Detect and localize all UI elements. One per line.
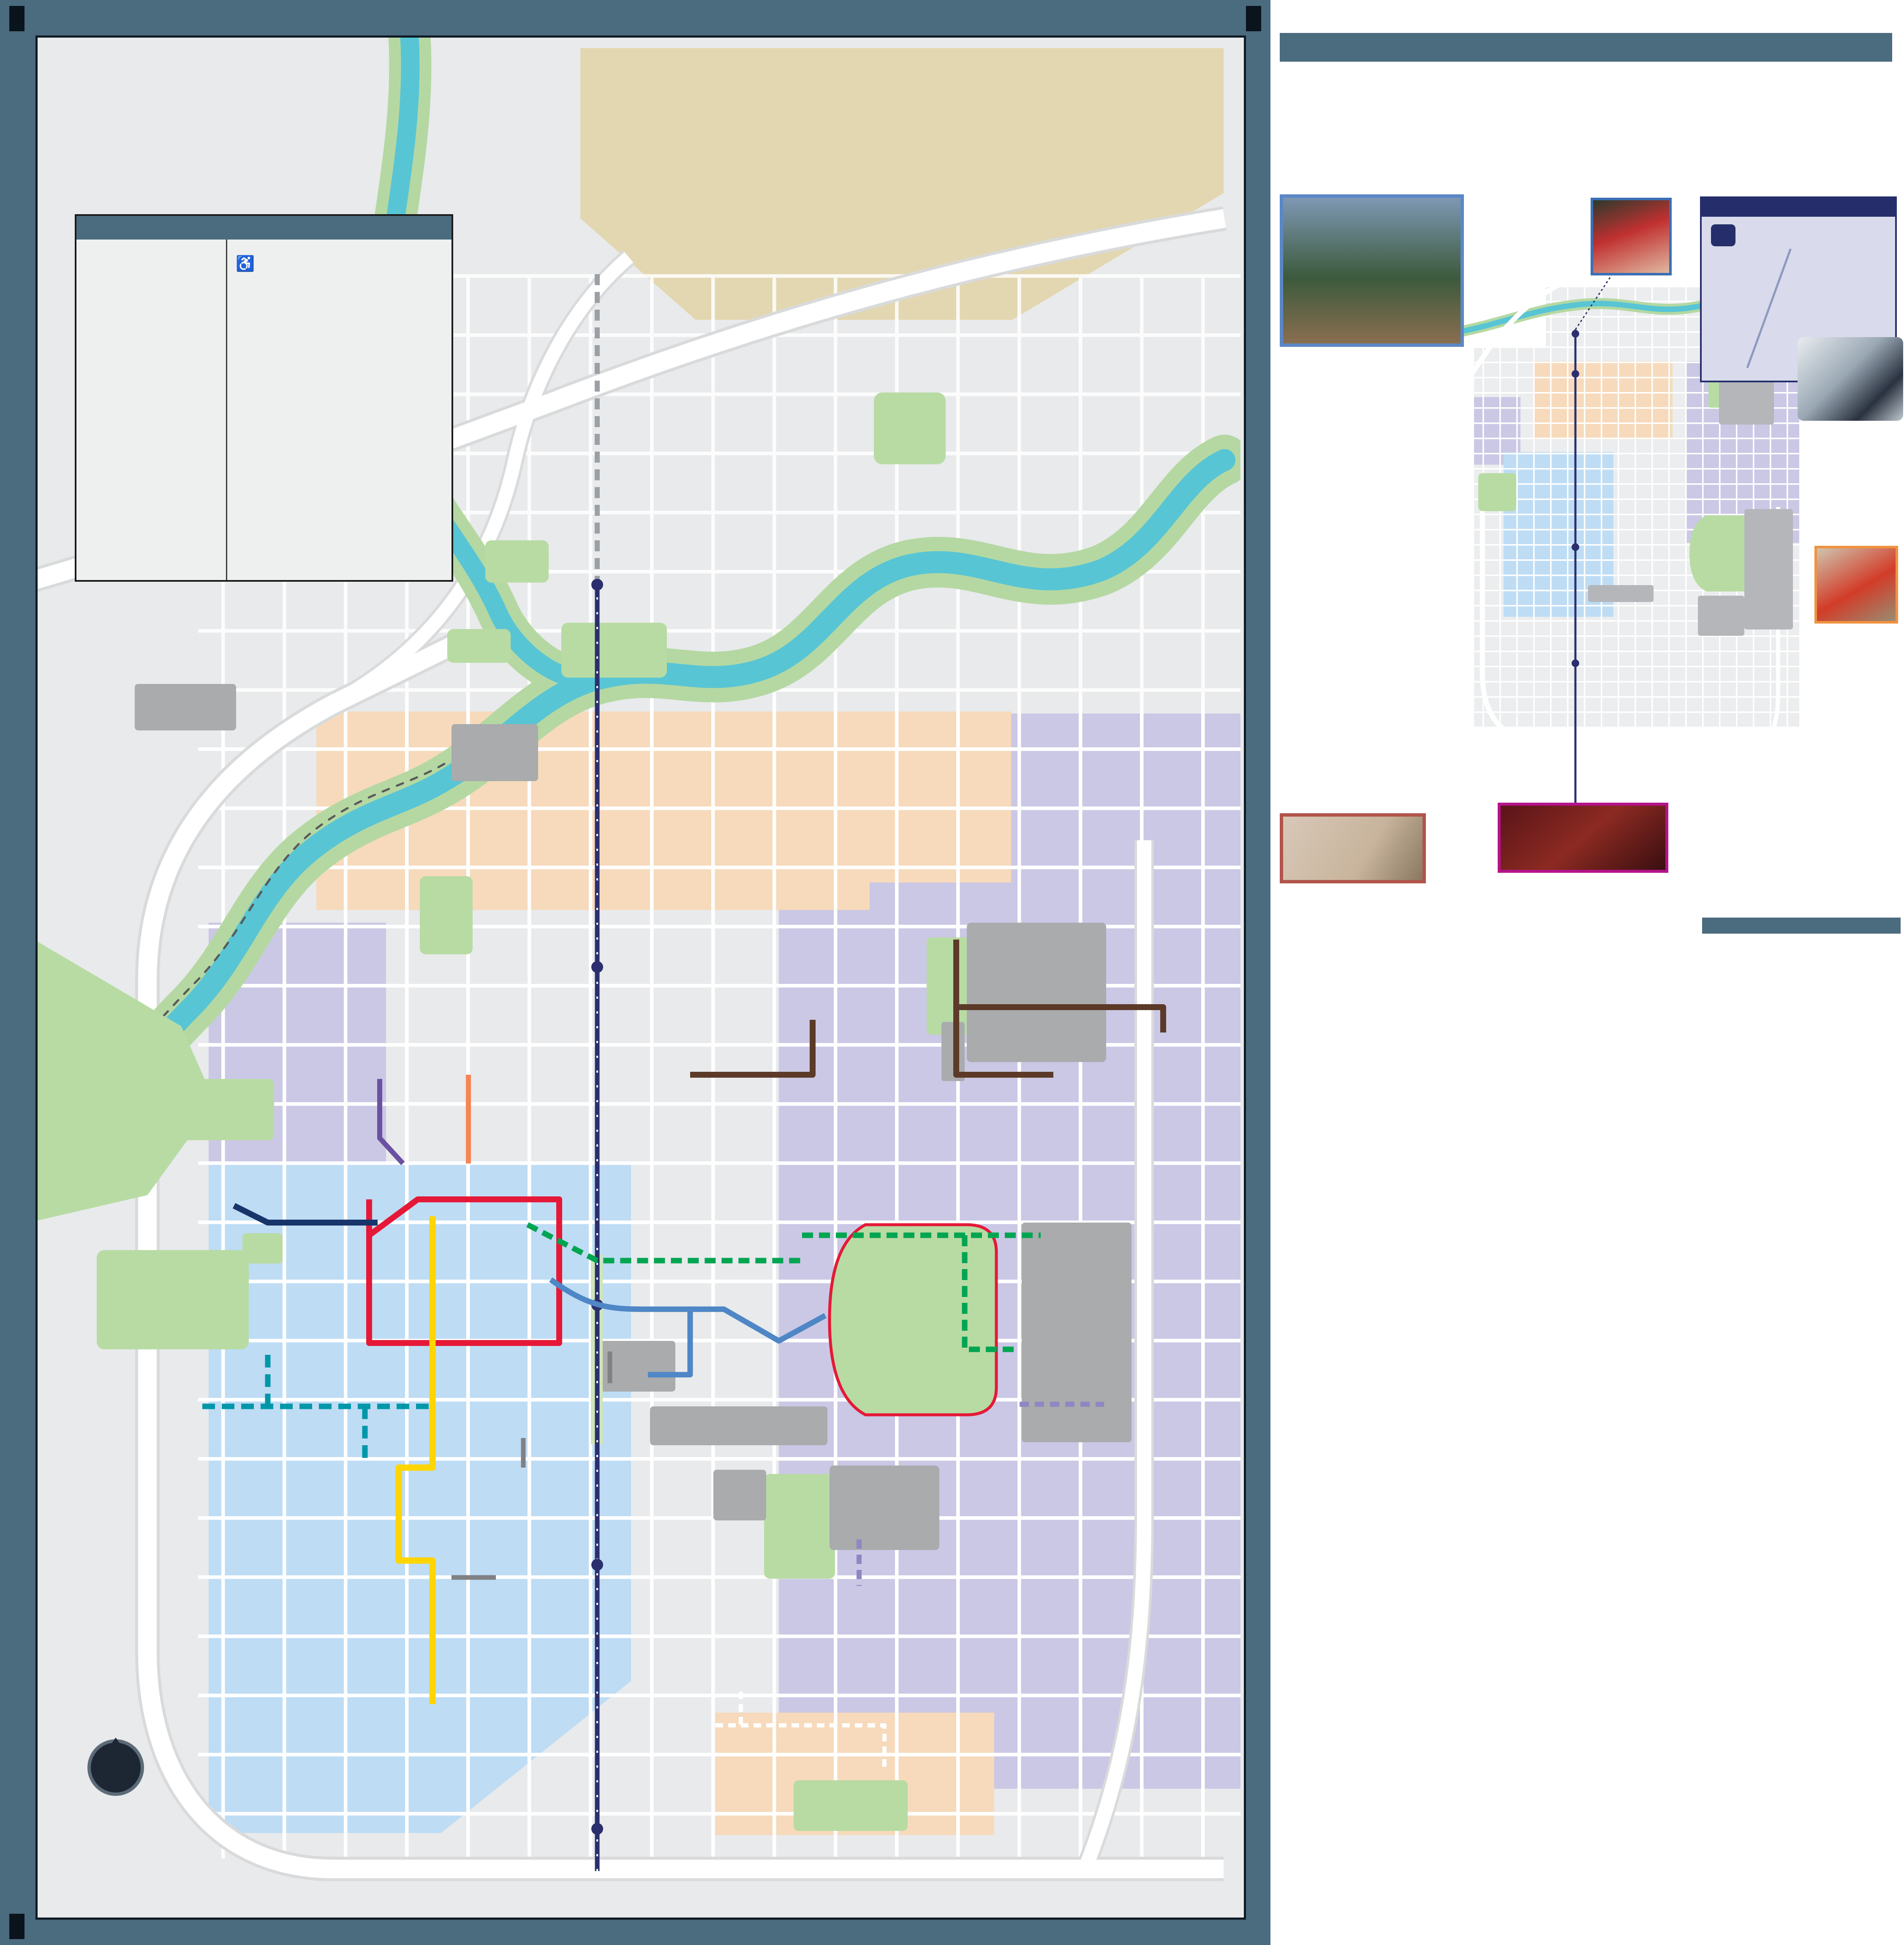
corner-mark <box>1246 6 1261 31</box>
corner-mark <box>9 6 24 31</box>
key-tunnels: ♿ <box>227 240 452 580</box>
handicapped-access-row: ♿ <box>236 255 443 272</box>
photo-couple-on-bridge <box>1280 194 1464 347</box>
destination-downtown-map-poster: ♿ <box>0 0 1904 1945</box>
edge-photo-strip <box>1892 0 1904 984</box>
photo-museum-statue <box>1280 813 1426 883</box>
guide-panel <box>1273 0 1904 1945</box>
key-neighborhoods <box>76 240 227 580</box>
photo-city-hall-visitors <box>1814 546 1898 624</box>
map-key-header <box>76 216 452 240</box>
map-frame: ♿ <box>35 35 1246 1920</box>
corner-mark <box>9 1914 24 1939</box>
compass-north <box>87 1739 144 1796</box>
panel-map-key-header <box>1702 918 1901 934</box>
panel-intro <box>1715 68 1901 69</box>
panel-tagline <box>1280 33 1892 62</box>
map-key-box: ♿ <box>75 214 453 582</box>
photo-metrorail-train <box>1798 337 1903 421</box>
metrorail-stations-title <box>1702 198 1895 217</box>
map-sheet: ♿ <box>0 0 1270 1945</box>
handicapped-icon: ♿ <box>236 255 255 272</box>
photo-sports-fan <box>1591 198 1672 275</box>
rail-line <box>1746 248 1792 368</box>
photo-theater-audience <box>1498 803 1668 873</box>
route-67-bus-icon <box>1711 224 1735 246</box>
bottom-checker-strip <box>1273 984 1904 1004</box>
